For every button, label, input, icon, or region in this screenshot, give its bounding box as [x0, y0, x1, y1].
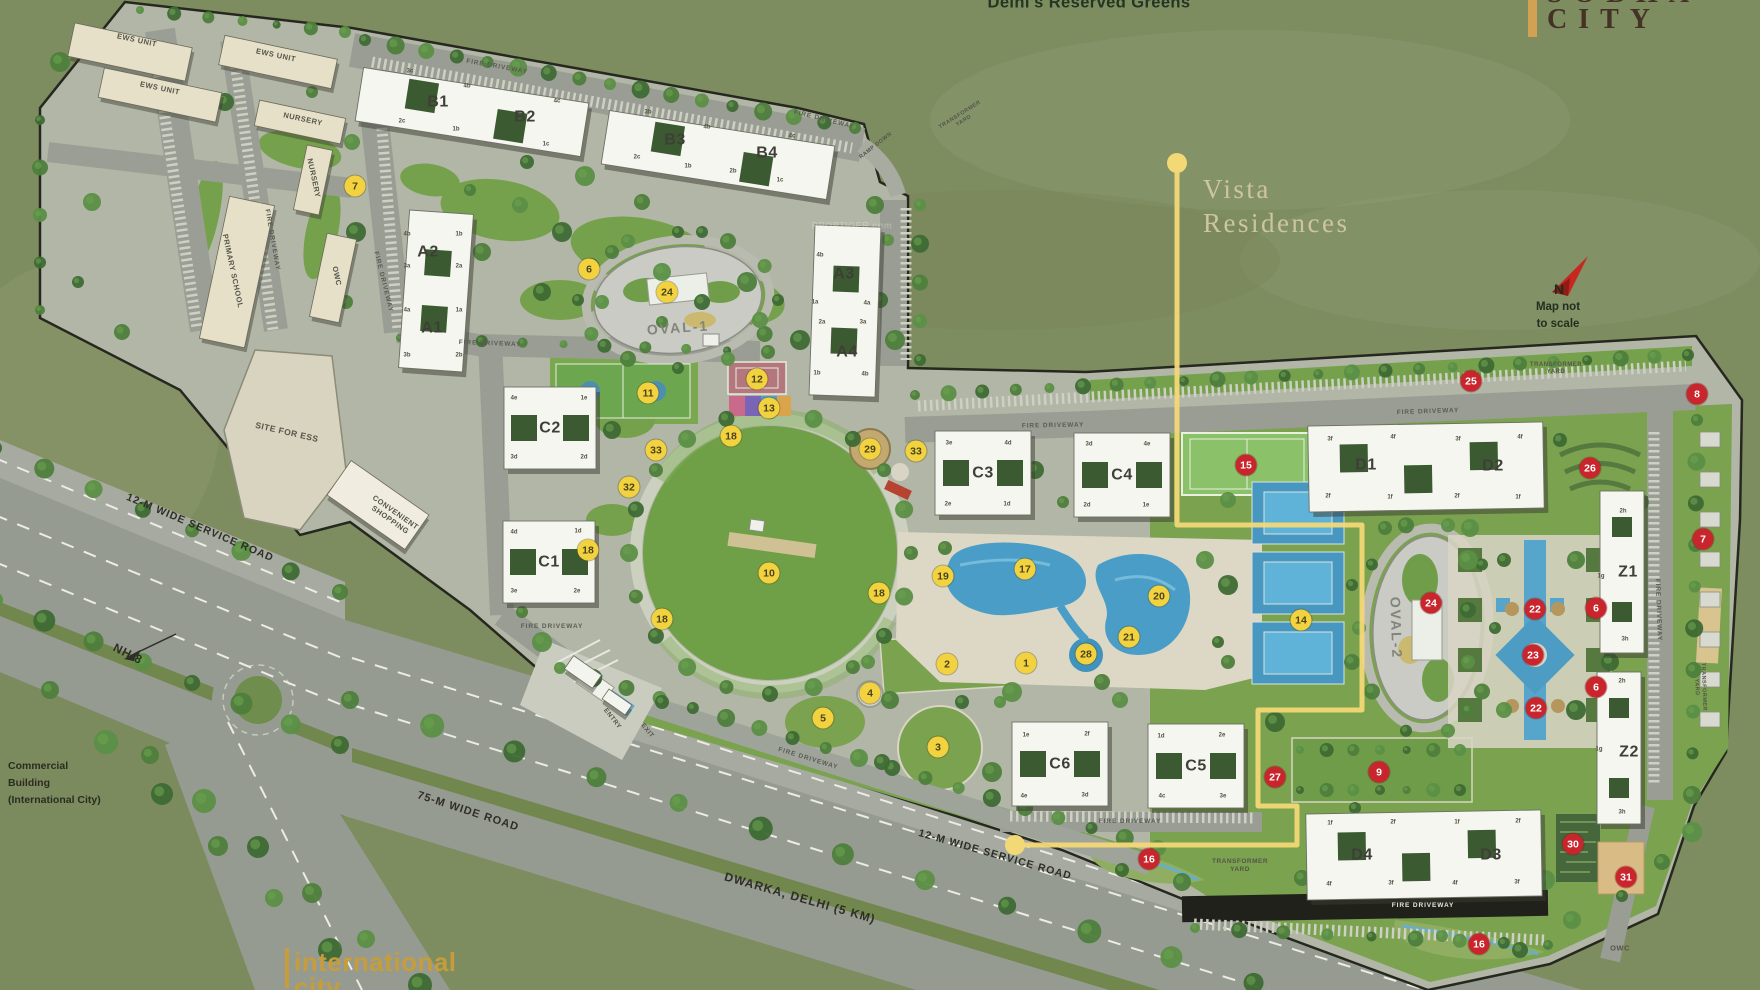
unit-label: 1f	[1387, 494, 1392, 501]
map-marker-red-7: 7	[1693, 529, 1714, 550]
fire-driveway-label: FIRE DRIVEWAY	[1392, 902, 1454, 910]
building-label-c6: C6	[1049, 754, 1070, 773]
road-label: 12-M WIDE SERVICE ROAD	[917, 827, 1073, 883]
unit-label: 3h	[1618, 809, 1625, 816]
place-label: PROPTIGER.com	[812, 221, 893, 232]
unit-label: 3e	[511, 588, 518, 595]
map-marker-red-22: 22	[1526, 698, 1547, 719]
fire-driveway-label: FIRE DRIVEWAY	[372, 251, 395, 313]
unit-label: 4c	[554, 98, 561, 105]
fire-driveway-label: FIRE DRIVEWAY	[1022, 422, 1085, 431]
map-marker-yellow-1: 1	[1016, 653, 1037, 674]
fire-driveway-label: FIRE DRIVEWAY	[466, 58, 529, 77]
map-marker-red-15: 15	[1236, 455, 1257, 476]
unit-label: 2d	[1083, 502, 1090, 509]
unit-label: 3f	[1514, 879, 1519, 886]
road-label: NH 8	[111, 640, 145, 667]
building-label-d1: D1	[1355, 455, 1376, 474]
building-label-c3: C3	[972, 463, 993, 482]
building-label-d4: D4	[1351, 845, 1372, 864]
map-marker-red-16: 16	[1469, 934, 1490, 955]
unit-label: 4e	[1144, 441, 1151, 448]
map-marker-yellow-18: 18	[869, 583, 890, 604]
unit-label: 4a	[864, 300, 871, 307]
map-marker-red-27: 27	[1265, 767, 1286, 788]
map-marker-yellow-7: 7	[345, 176, 366, 197]
unit-label: 3d	[510, 454, 517, 461]
unit-label: 1b	[684, 163, 691, 170]
road-label: 75-M WIDE ROAD	[415, 789, 520, 834]
map-marker-yellow-5: 5	[813, 708, 834, 729]
unit-label: 2a	[819, 319, 826, 326]
unit-label: 3d	[1085, 441, 1092, 448]
unit-label: 2e	[945, 501, 952, 508]
labels-layer: B1B2B3B4A2A1A3A4C2C1C3C4C6C5D1D2D4D3Z1Z2…	[0, 0, 1760, 990]
building-label-z2: Z2	[1619, 742, 1639, 761]
map-marker-yellow-17: 17	[1015, 559, 1036, 580]
place-label: OWC	[1610, 944, 1630, 953]
unit-label: 4e	[511, 395, 518, 402]
fire-driveway-label: FIRE DRIVEWAY	[521, 623, 583, 631]
place-label: EXIT	[639, 722, 655, 740]
unit-label: 3f	[1388, 880, 1393, 887]
unit-label: 2f	[1390, 819, 1395, 826]
unit-label: 2h	[1619, 508, 1626, 515]
place-label: NURSERY	[283, 110, 324, 127]
place-label: RAMP DOWN	[858, 131, 893, 161]
unit-label: 2b	[729, 168, 736, 175]
place-label: EWS UNIT	[255, 46, 297, 63]
road-label: DWARKA, DELHI (5 KM)	[723, 869, 878, 926]
unit-label: 3f	[1455, 436, 1460, 443]
building-label-a4: A4	[836, 342, 857, 361]
map-marker-red-23: 23	[1523, 645, 1544, 666]
unit-label: 4f	[1517, 434, 1522, 441]
map-marker-red-24: 24	[1421, 593, 1442, 614]
building-label-d2: D2	[1482, 456, 1503, 475]
map-marker-yellow-18: 18	[652, 609, 673, 630]
fire-driveway-label: FIRE DRIVEWAY	[1653, 579, 1663, 642]
unit-label: 2f	[1515, 818, 1520, 825]
place-label: SITE FOR ESS	[254, 420, 319, 444]
unit-label: 1f	[1515, 494, 1520, 501]
unit-label: 1g	[1597, 573, 1604, 580]
map-marker-yellow-20: 20	[1149, 586, 1170, 607]
unit-label: 1c	[543, 141, 550, 148]
unit-label: 2e	[574, 588, 581, 595]
unit-label: 1a	[812, 299, 819, 306]
building-label-b3: B3	[664, 130, 685, 149]
unit-label: 1d	[1003, 501, 1010, 508]
map-marker-red-31: 31	[1616, 867, 1637, 888]
oval-label: OVAL-1	[646, 317, 709, 338]
fire-driveway-label: FIRE DRIVEWAY	[263, 209, 282, 272]
building-label-b4: B4	[756, 143, 777, 162]
building-label-c4: C4	[1111, 465, 1132, 484]
unit-label: 1b	[455, 231, 462, 238]
unit-label: 1d	[574, 528, 581, 535]
unit-label: 2b	[455, 352, 462, 359]
unit-label: 2f	[1325, 493, 1330, 500]
place-label: EWS UNIT	[116, 31, 158, 48]
map-marker-yellow-4: 4	[860, 683, 881, 704]
building-label-z1: Z1	[1618, 562, 1638, 581]
place-label: TRANSFORMER YARD	[1692, 657, 1707, 717]
unit-label: 4b	[703, 124, 710, 131]
unit-label: 2c	[399, 118, 406, 125]
map-marker-yellow-12: 12	[747, 369, 768, 390]
unit-label: 4f	[1326, 881, 1331, 888]
unit-label: 2h	[1618, 678, 1625, 685]
unit-label: 3a	[404, 263, 411, 270]
unit-label: 1a	[456, 307, 463, 314]
building-label-c1: C1	[538, 552, 559, 571]
fire-driveway-label: FIRE DRIVEWAY	[1397, 407, 1460, 417]
unit-label: 2d	[580, 454, 587, 461]
unit-label: 2e	[1219, 732, 1226, 739]
unit-label: 4b	[816, 252, 823, 259]
building-label-c2: C2	[539, 418, 560, 437]
map-marker-yellow-32: 32	[619, 477, 640, 498]
place-label: EWS UNIT	[139, 79, 181, 96]
map-marker-yellow-18: 18	[578, 540, 599, 561]
unit-label: 4f	[1390, 434, 1395, 441]
fire-driveway-label: FIRE DRIVEWAY	[459, 339, 522, 349]
map-marker-red-9: 9	[1369, 762, 1390, 783]
unit-label: 1b	[813, 370, 820, 377]
unit-label: 3c	[407, 68, 414, 75]
unit-label: 4e	[1021, 793, 1028, 800]
map-marker-yellow-13: 13	[759, 398, 780, 419]
map-marker-yellow-18: 18	[721, 426, 742, 447]
map-marker-red-6: 6	[1586, 598, 1607, 619]
map-marker-red-16: 16	[1139, 849, 1160, 870]
unit-label: 4b	[463, 83, 470, 90]
unit-label: 2f	[1084, 731, 1089, 738]
unit-label: 3a	[860, 319, 867, 326]
unit-label: 2a	[456, 263, 463, 270]
building-label-c5: C5	[1185, 756, 1206, 775]
unit-label: 3f	[1327, 436, 1332, 443]
unit-label: 3e	[1220, 793, 1227, 800]
road-label: 12-M WIDE SERVICE ROAD	[124, 491, 275, 565]
unit-label: 4b	[861, 371, 868, 378]
map-marker-red-26: 26	[1580, 458, 1601, 479]
map-marker-red-6: 6	[1586, 677, 1607, 698]
map-marker-yellow-11: 11	[638, 383, 659, 404]
fire-driveway-label: FIRE DRIVEWAY	[793, 109, 855, 132]
map-marker-red-25: 25	[1461, 371, 1482, 392]
unit-label: 4b	[403, 231, 410, 238]
map-marker-yellow-6: 6	[579, 259, 600, 280]
map-marker-yellow-29: 29	[860, 439, 881, 460]
unit-label: 3h	[1621, 636, 1628, 643]
place-label: TRANSFORMER YARD	[1212, 858, 1268, 874]
map-marker-yellow-33: 33	[646, 440, 667, 461]
oval-label: OVAL-2	[1387, 597, 1406, 660]
unit-label: 4c	[789, 133, 796, 140]
unit-label: 3b	[403, 352, 410, 359]
building-label-b1: B1	[427, 92, 448, 111]
map-marker-yellow-24: 24	[657, 282, 678, 303]
building-label-a1: A1	[421, 318, 442, 337]
place-label: NURSERY	[305, 158, 322, 199]
place-label: CONVENIENT SHOPPING	[366, 493, 421, 539]
unit-label: 1b	[452, 126, 459, 133]
unit-label: 3e	[946, 440, 953, 447]
unit-label: 1c	[777, 177, 784, 184]
building-label-a2: A2	[417, 242, 438, 261]
unit-label: 4f	[1452, 880, 1457, 887]
unit-label: 1g	[1595, 746, 1602, 753]
building-label-a3: A3	[833, 264, 854, 283]
place-label: PRIMARY SCHOOL	[221, 233, 245, 309]
unit-label: 3b	[644, 109, 651, 116]
fire-driveway-label: FIRE DRIVEWAY	[777, 746, 839, 772]
unit-label: 2c	[634, 154, 641, 161]
unit-label: 4d	[510, 529, 517, 536]
map-marker-yellow-10: 10	[759, 563, 780, 584]
unit-label: 1e	[1023, 732, 1030, 739]
place-label: TRANSFORMER YARD	[1530, 362, 1582, 376]
site-plan-map: B1B2B3B4A2A1A3A4C2C1C3C4C6C5D1D2D4D3Z1Z2…	[0, 0, 1760, 990]
unit-label: 2f	[1454, 493, 1459, 500]
unit-label: 1f	[1327, 820, 1332, 827]
unit-label: 1e	[1143, 502, 1150, 509]
place-label: ENTRY	[601, 707, 622, 731]
place-label: OWC	[331, 265, 344, 286]
map-marker-red-30: 30	[1563, 834, 1584, 855]
building-label-d3: D3	[1480, 845, 1501, 864]
map-marker-yellow-33: 33	[906, 441, 927, 462]
unit-label: 3d	[1081, 792, 1088, 799]
map-marker-red-8: 8	[1687, 384, 1708, 405]
building-label-b2: B2	[514, 107, 535, 126]
unit-label: 1f	[1454, 819, 1459, 826]
map-marker-yellow-2: 2	[937, 654, 958, 675]
map-marker-yellow-28: 28	[1076, 644, 1097, 665]
map-marker-yellow-19: 19	[933, 566, 954, 587]
map-marker-red-22: 22	[1525, 599, 1546, 620]
unit-label: 1d	[1157, 733, 1164, 740]
map-marker-yellow-14: 14	[1291, 610, 1312, 631]
fire-driveway-label: FIRE DRIVEWAY	[1099, 818, 1161, 826]
unit-label: 1e	[581, 395, 588, 402]
unit-label: 4a	[404, 307, 411, 314]
unit-label: 4d	[1004, 440, 1011, 447]
place-label: TRANSFORMER YARD	[938, 100, 986, 137]
map-marker-yellow-21: 21	[1119, 627, 1140, 648]
map-marker-yellow-3: 3	[928, 737, 949, 758]
unit-label: 4c	[1159, 793, 1166, 800]
